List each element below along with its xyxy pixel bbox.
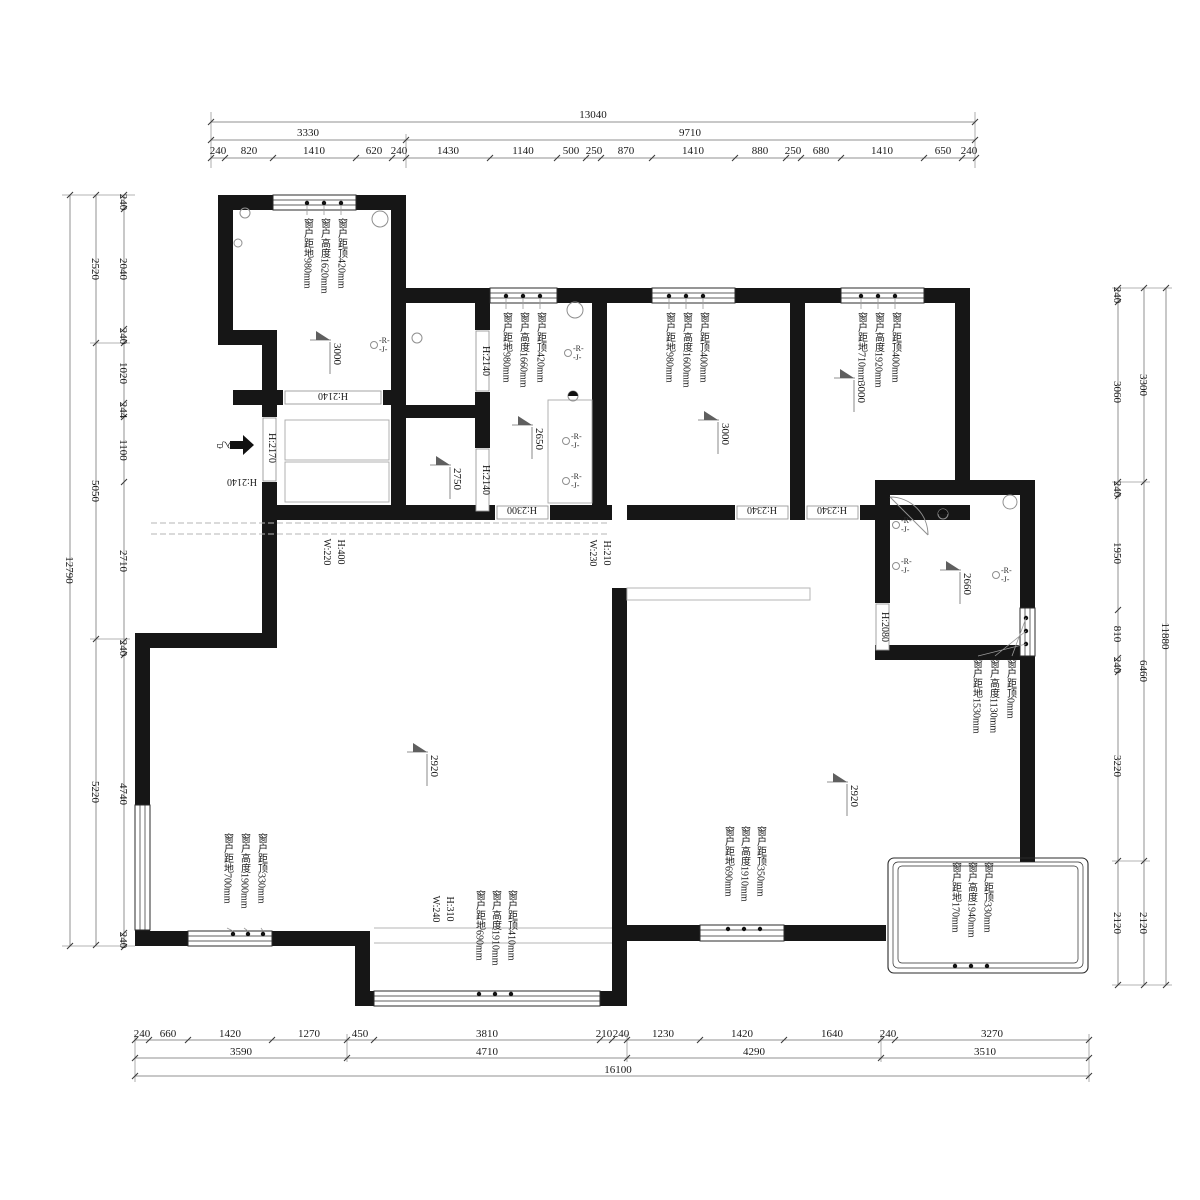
dim-label: 1420 [731, 1028, 754, 1040]
svg-text:窗户距地980mm: 窗户距地980mm [501, 311, 513, 383]
dim-label: 240 [1111, 481, 1123, 498]
downlight-icon [1003, 495, 1017, 509]
svg-text:窗户距地980mm: 窗户距地980mm [664, 311, 676, 383]
svg-text:2750: 2750 [451, 468, 463, 491]
window [700, 925, 784, 941]
door-height-label: H:2140 [480, 465, 491, 495]
dim-label: 1410 [871, 145, 894, 157]
door-height-label: H:2300 [507, 504, 537, 515]
svg-text:窗户高度1940mm: 窗户高度1940mm [966, 861, 978, 938]
window [841, 288, 924, 303]
dim-label: 240 [117, 194, 129, 211]
dim-label: 240 [880, 1028, 897, 1040]
dim-label: 250 [785, 145, 802, 157]
elevation-marker: 2650 [512, 416, 545, 459]
dim-label: 880 [752, 145, 769, 157]
dim-label: 1140 [512, 145, 534, 157]
dim-label: 12790 [63, 556, 75, 584]
dim-label: 4710 [476, 1046, 499, 1058]
elevation-marker: 3000 [310, 331, 343, 374]
dim-label: 660 [160, 1028, 177, 1040]
dim-label: 870 [618, 145, 635, 157]
svg-text:-R-: -R- [1001, 566, 1012, 575]
dim-label: 3810 [476, 1028, 499, 1040]
svg-text:窗户高度1910mm: 窗户高度1910mm [739, 825, 751, 902]
elevation-markers: 3000 2650 2750 3000 3000 2660 2920 2920 [310, 331, 973, 816]
svg-text:-J-: -J- [1001, 575, 1010, 584]
svg-text:2920: 2920 [428, 755, 440, 778]
dim-label: 1270 [298, 1028, 321, 1040]
svg-text:窗户高度1660mm: 窗户高度1660mm [518, 311, 530, 388]
window [374, 991, 600, 1006]
svg-text:窗户距顶420mm: 窗户距顶420mm [336, 217, 348, 289]
window [273, 195, 356, 210]
dim-label: 240 [117, 640, 129, 657]
window [652, 288, 735, 303]
svg-text:3000: 3000 [331, 343, 343, 366]
dim-label: 1020 [117, 362, 129, 385]
dim-label: 2520 [89, 258, 101, 281]
dimension-labels-right: 11880 3300 6460 2120 240 3060 240 1950 8… [1111, 287, 1171, 935]
dim-label: 650 [935, 145, 952, 157]
floor-plan-canvas: 13040 3330 9710 240 820 1410 620 240 143… [0, 0, 1200, 1200]
dim-label: 2120 [1111, 912, 1123, 935]
dim-label: 3590 [230, 1046, 253, 1058]
dim-label: 620 [366, 145, 383, 157]
dim-label: 2710 [117, 550, 129, 573]
door-height-label: H:2340 [817, 504, 847, 515]
svg-text:-J-: -J- [571, 441, 580, 450]
door-height-label: H:2140 [480, 346, 491, 376]
beam-label: H:400 [335, 540, 346, 565]
rj-switch-icon: -R--J- [565, 344, 585, 362]
svg-text:窗户高度1620mm: 窗户高度1620mm [319, 217, 331, 294]
svg-text:窗户距地690mm: 窗户距地690mm [723, 825, 735, 897]
dim-label: 1410 [682, 145, 705, 157]
window-annotation: 窗户距地980mm 窗户高度1620mm 窗户距顶420mm [302, 201, 348, 294]
rj-switch-icon: -R--J- [893, 557, 913, 575]
dim-label: 4740 [117, 783, 129, 806]
elevation-marker: 2920 [827, 773, 860, 816]
elevation-marker: 2920 [407, 743, 440, 786]
door-height-label: H:2140 [318, 390, 348, 401]
dim-label: 2120 [1137, 912, 1149, 935]
dim-label: 450 [352, 1028, 369, 1040]
beams: H:400 W:220 H:210 W:230 H:310 W:240 [151, 523, 810, 943]
beam-label: W:230 [587, 540, 598, 567]
beam-label: W:240 [430, 896, 441, 923]
dim-label: 1100 [117, 439, 129, 461]
dim-label: 810 [1111, 626, 1123, 643]
elevation-marker: 2660 [940, 561, 973, 604]
door-height-label: H:2170 [266, 433, 277, 463]
ceiling-light-icon [412, 333, 422, 343]
dim-label: 1420 [219, 1028, 242, 1040]
svg-text:窗户距顶400mm: 窗户距顶400mm [890, 311, 902, 383]
dim-label: 680 [813, 145, 830, 157]
door-height-label: H:2140 [227, 476, 257, 487]
dim-label: 250 [586, 145, 603, 157]
downlight-icon [372, 211, 388, 227]
svg-text:-J-: -J- [571, 481, 580, 490]
dim-label: 240 [961, 145, 978, 157]
dimension-labels-bottom: 16100 3590 4710 4290 3510 240 660 1420 1… [134, 1028, 1004, 1076]
rj-switch-icon: -R--J- [993, 566, 1013, 584]
window [188, 931, 272, 946]
svg-text:2660: 2660 [961, 573, 973, 596]
dim-label: 500 [563, 145, 580, 157]
svg-text:-J-: -J- [379, 345, 388, 354]
svg-text:窗户高度1130mm: 窗户高度1130mm [988, 657, 1000, 734]
svg-text:窗户距地1530mm: 窗户距地1530mm [971, 657, 983, 734]
svg-text:窗户距地710mm: 窗户距地710mm [856, 311, 868, 383]
svg-text:窗户距顶420mm: 窗户距顶420mm [535, 311, 547, 383]
svg-text:窗户距顶400mm: 窗户距顶400mm [698, 311, 710, 383]
entrance: 入户 [216, 435, 254, 455]
elevation-marker: 2750 [430, 456, 463, 499]
svg-text:3000: 3000 [719, 423, 731, 446]
window-annotation: 窗户距地690mm 窗户高度1910mm 窗户距顶410mm [474, 889, 518, 996]
entrance-label: 入户 [216, 440, 232, 450]
window-annotation: 窗户距地710mm 窗户高度1920mm 窗户距顶400mm [856, 294, 902, 388]
svg-text:窗户距顶330mm: 窗户距顶330mm [256, 832, 268, 904]
downlight-icon [567, 302, 583, 318]
dim-label: 3300 [1137, 374, 1149, 397]
svg-text:窗户距顶410mm: 窗户距顶410mm [506, 889, 518, 961]
rj-switch-icon: -R--J- [371, 336, 391, 354]
dim-label: 1950 [1111, 542, 1123, 565]
dim-label: 240 [1111, 657, 1123, 674]
dim-label: 16100 [604, 1064, 632, 1076]
ceiling-light-icon [234, 239, 242, 247]
dim-label: 9710 [679, 127, 702, 139]
svg-text:-R-: -R- [901, 516, 912, 525]
dim-label: 2040 [117, 258, 129, 281]
svg-text:窗户高度1920mm: 窗户高度1920mm [873, 311, 885, 388]
beam-label: W:220 [321, 539, 332, 566]
door-height-label: H:2080 [879, 612, 890, 642]
door-height-label: H:2340 [747, 504, 777, 515]
svg-text:-R-: -R- [571, 472, 582, 481]
dim-label: 240 [391, 145, 408, 157]
dim-label: 11880 [1159, 622, 1171, 650]
dim-label: 244 [117, 402, 129, 419]
window-annotation: 窗户距地980mm 窗户高度1660mm 窗户距顶420mm [501, 294, 547, 388]
svg-text:-R-: -R- [901, 557, 912, 566]
beam-label: H:210 [601, 541, 612, 566]
dim-label: 1230 [652, 1028, 675, 1040]
dim-label: 6460 [1137, 660, 1149, 683]
svg-text:窗户高度1600mm: 窗户高度1600mm [681, 311, 693, 388]
svg-text:窗户距地690mm: 窗户距地690mm [474, 889, 486, 961]
half-lamp-icon [568, 391, 578, 401]
svg-text:2650: 2650 [533, 428, 545, 451]
svg-text:窗户距地980mm: 窗户距地980mm [302, 217, 314, 289]
svg-text:窗户距顶350mm: 窗户距顶350mm [755, 825, 767, 897]
svg-text:2920: 2920 [848, 785, 860, 808]
floor-plan-page: 13040 3330 9710 240 820 1410 620 240 143… [0, 0, 1200, 1200]
dim-label: 13040 [579, 109, 607, 121]
dim-label: 5050 [89, 480, 101, 503]
dim-label: 820 [241, 145, 258, 157]
svg-text:窗户距顶0mm: 窗户距顶0mm [1005, 657, 1017, 719]
svg-text:窗户距顶330mm: 窗户距顶330mm [982, 861, 994, 933]
dim-label: 3060 [1111, 381, 1123, 404]
elevation-marker: 3000 [698, 411, 731, 454]
dim-label: 3270 [981, 1028, 1004, 1040]
svg-text:-J-: -J- [901, 566, 910, 575]
rj-switch-icon: -R--J- [563, 472, 583, 490]
dim-label: 1640 [821, 1028, 844, 1040]
svg-text:-R-: -R- [379, 336, 390, 345]
dim-label: 210 [596, 1028, 613, 1040]
dim-label: 1430 [437, 145, 460, 157]
window-annotation: 窗户距地980mm 窗户高度1600mm 窗户距顶400mm [664, 294, 710, 388]
svg-text:3000: 3000 [855, 381, 867, 404]
dim-label: 240 [117, 328, 129, 345]
svg-text:窗户高度1900mm: 窗户高度1900mm [239, 832, 251, 909]
beam-label: H:310 [444, 897, 455, 922]
dim-label: 240 [117, 932, 129, 949]
dim-label: 1410 [303, 145, 326, 157]
windows [135, 195, 1088, 1006]
dim-label: 3330 [297, 127, 320, 139]
rj-switch-icon: -R--J- [563, 432, 583, 450]
svg-text:窗户距地170mm: 窗户距地170mm [950, 861, 962, 933]
window [135, 805, 150, 930]
dimension-labels-top: 13040 3330 9710 240 820 1410 620 240 143… [210, 109, 978, 157]
svg-text:窗户高度1910mm: 窗户高度1910mm [490, 889, 502, 966]
svg-text:-R-: -R- [573, 344, 584, 353]
svg-text:-R-: -R- [571, 432, 582, 441]
entrance-arrow-icon [230, 435, 254, 455]
dim-label: 240 [613, 1028, 630, 1040]
dim-label: 240 [1111, 287, 1123, 304]
svg-text:-J-: -J- [573, 353, 582, 362]
window-annotation: 窗户距地170mm 窗户高度1940mm 窗户距顶330mm [950, 861, 994, 968]
window-annotation: 窗户距地690mm 窗户高度1910mm 窗户距顶350mm [723, 825, 767, 931]
dim-label: 240 [134, 1028, 151, 1040]
dim-label: 5220 [89, 781, 101, 804]
dim-label: 3510 [974, 1046, 997, 1058]
dim-label: 240 [210, 145, 227, 157]
svg-text:窗户距地700mm: 窗户距地700mm [222, 832, 234, 904]
window-annotation: 窗户距地700mm 窗户高度1900mm 窗户距顶330mm [222, 832, 268, 936]
dim-label: 4290 [743, 1046, 766, 1058]
dim-label: 3220 [1111, 755, 1123, 778]
svg-text:-J-: -J- [901, 525, 910, 534]
